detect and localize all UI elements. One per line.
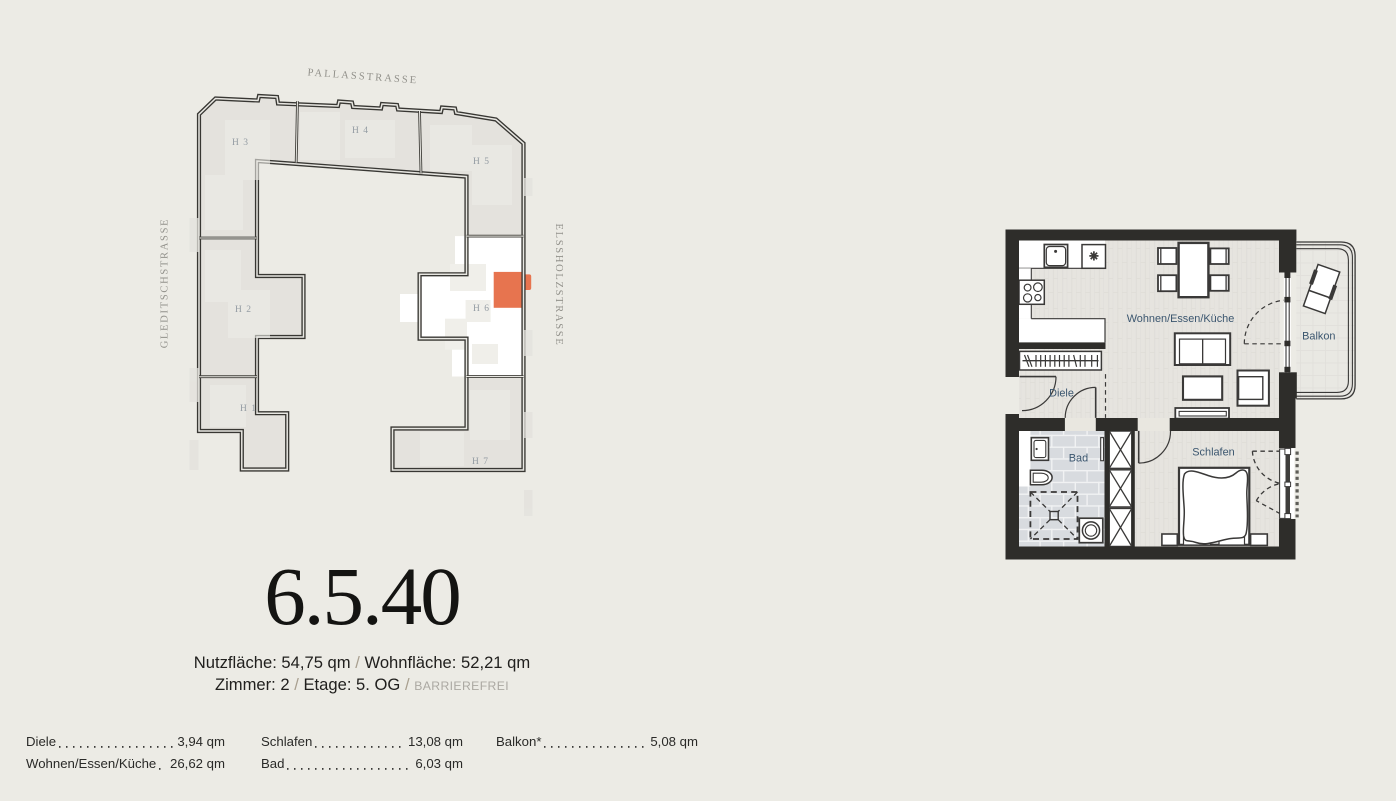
svg-text:Balkon: Balkon <box>1302 331 1335 343</box>
svg-text:H 1: H 1 <box>240 404 257 414</box>
svg-text:Wohnen/Essen/Küche: Wohnen/Essen/Küche <box>1127 313 1235 325</box>
svg-text:PALLASSTRASSE: PALLASSTRASSE <box>307 67 418 86</box>
svg-text:H 3: H 3 <box>232 138 249 148</box>
svg-text:ELSSHOLZSTRASSE: ELSSHOLZSTRASSE <box>553 224 564 347</box>
svg-text:H 2: H 2 <box>235 305 252 315</box>
svg-text:H 7: H 7 <box>472 457 489 467</box>
svg-text:Schlafen: Schlafen <box>1192 447 1234 459</box>
svg-text:Bad: Bad <box>1069 453 1088 465</box>
svg-text:Diele: Diele <box>1049 388 1074 400</box>
svg-text:H 5: H 5 <box>473 157 490 167</box>
svg-text:GLEDITSCHSTRASSE: GLEDITSCHSTRASSE <box>160 218 171 348</box>
svg-text:H 4: H 4 <box>352 126 369 136</box>
svg-text:H 6: H 6 <box>473 304 490 314</box>
